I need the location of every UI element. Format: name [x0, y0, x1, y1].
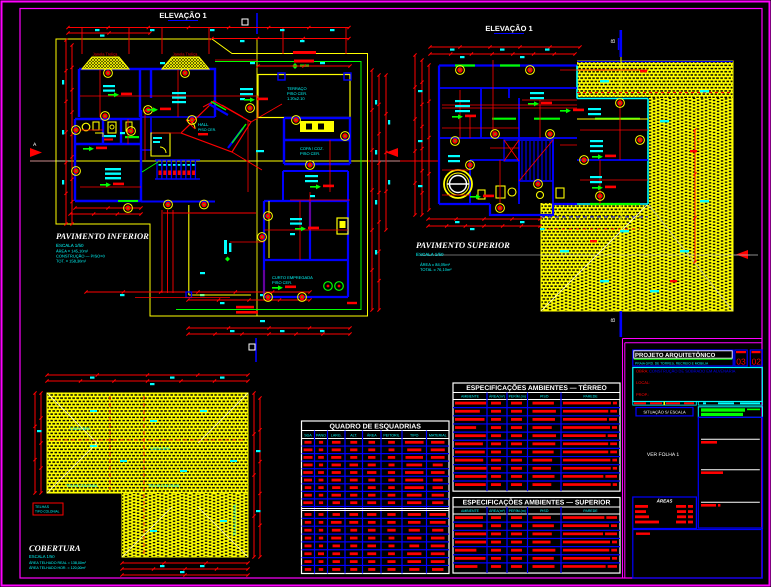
- svg-text:TOTAL = 76,10m²: TOTAL = 76,10m²: [420, 267, 452, 272]
- svg-text:ESCALA 1/50: ESCALA 1/50: [56, 243, 84, 248]
- svg-text:B: B: [610, 39, 617, 43]
- svg-text:AMBIENTE: AMBIENTE: [461, 509, 480, 513]
- svg-text:PRAIA GRD. DE TORRES, RECREIO: PRAIA GRD. DE TORRES, RECREIO E MOBILIA: [635, 362, 709, 366]
- svg-text:MATERIAL: MATERIAL: [429, 434, 447, 438]
- svg-text:TOT. = 158,30m²: TOT. = 158,30m²: [56, 259, 87, 264]
- svg-text:SGA: SGA: [304, 434, 312, 438]
- svg-text:TELHAS: TELHAS: [35, 505, 50, 509]
- svg-text:03: 03: [736, 357, 746, 367]
- svg-text:ALT.: ALT.: [350, 434, 357, 438]
- svg-text:CAIDA 30%: CAIDA 30%: [150, 447, 171, 451]
- svg-text:PAREDE: PAREDE: [583, 395, 598, 399]
- svg-text:OBRA:: OBRA:: [636, 369, 648, 374]
- svg-text:ÁREA TELHADO REAL = 138,00m²: ÁREA TELHADO REAL = 138,00m²: [29, 560, 87, 565]
- svg-text:TELHA COLONIAL: TELHA COLONIAL: [148, 484, 180, 488]
- svg-text:LOCAL:: LOCAL:: [636, 380, 650, 385]
- svg-text:PERÍM.(m): PERÍM.(m): [509, 508, 526, 513]
- svg-text:PAVIMENTO SUPERIOR: PAVIMENTO SUPERIOR: [416, 240, 510, 250]
- svg-text:LARG.: LARG.: [331, 434, 342, 438]
- svg-text:PANO: PANO: [316, 434, 326, 438]
- svg-text:CAIDA 30%: CAIDA 30%: [70, 427, 91, 431]
- svg-text:PISO: PISO: [540, 395, 549, 399]
- svg-text:HALL: HALL: [198, 122, 209, 127]
- svg-text:PERÍM.(m): PERÍM.(m): [509, 394, 526, 399]
- svg-text:VER FOLHA 1: VER FOLHA 1: [647, 452, 679, 458]
- svg-text:ESPECIFICAÇÕES AMBIENTES —: ESPECIFICAÇÕES AMBIENTES — SUPERIOR: [463, 498, 611, 507]
- svg-text:PISO CER.: PISO CER.: [198, 128, 216, 132]
- svg-text:1.20x2.10: 1.20x2.10: [287, 96, 305, 101]
- svg-text:ESPECIFICAÇÕES AMBIENTES —: ESPECIFICAÇÕES AMBIENTES — TÉRREO: [466, 383, 607, 392]
- svg-text:TIPO COLONIAL: TIPO COLONIAL: [35, 510, 60, 514]
- svg-text:PISO CER.: PISO CER.: [300, 151, 320, 156]
- svg-text:ELEVAÇÃO 1: ELEVAÇÃO 1: [485, 24, 532, 33]
- svg-text:TIPO: TIPO: [410, 434, 419, 438]
- svg-text:PAVIMENTO INFERIOR: PAVIMENTO INFERIOR: [56, 231, 149, 241]
- svg-text:Janela Treliça: Janela Treliça: [93, 52, 118, 57]
- svg-text:ÁREA TELHADO HOR. = 120,00m²: ÁREA TELHADO HOR. = 120,00m²: [29, 565, 87, 570]
- svg-text:B: B: [610, 318, 617, 322]
- svg-text:TELHA COLONIAL: TELHA COLONIAL: [233, 504, 237, 536]
- svg-text:ÁREAS: ÁREAS: [656, 498, 673, 503]
- svg-text:PROJETO ARQUITETÔNICO: PROJETO ARQUITETÔNICO: [635, 351, 716, 359]
- svg-text:PISO CER.: PISO CER.: [272, 280, 292, 285]
- svg-text:QUADRO DE ESQUADRIAS: QUADRO DE ESQUADRIAS: [330, 424, 422, 431]
- svg-text:COBERTURA: COBERTURA: [29, 543, 81, 553]
- svg-text:SITUAÇÃO S/ ESCALA: SITUAÇÃO S/ ESCALA: [643, 410, 686, 415]
- svg-text:ÁREA(m²): ÁREA(m²): [489, 508, 505, 513]
- svg-text:ELEVAÇÃO 1: ELEVAÇÃO 1: [159, 11, 206, 20]
- svg-text:ÁREA: ÁREA: [367, 433, 377, 438]
- svg-text:PEITORIL: PEITORIL: [383, 434, 399, 438]
- svg-text:ESCALA 1/50: ESCALA 1/50: [416, 252, 444, 257]
- svg-text:CONSTRUÇÃO DE SOBRADO EM ALVEN: CONSTRUÇÃO DE SOBRADO EM ALVENARIA: [649, 369, 736, 374]
- svg-text:PROP.:: PROP.:: [636, 392, 649, 397]
- svg-text:PISO: PISO: [540, 509, 549, 513]
- svg-text:ÁREA(m²): ÁREA(m²): [489, 394, 505, 399]
- svg-text:AMBIENTE: AMBIENTE: [461, 395, 480, 399]
- svg-text:PAREDE: PAREDE: [583, 509, 598, 513]
- svg-text:Janela Treliça: Janela Treliça: [173, 52, 198, 57]
- svg-text:ESCALA 1/50: ESCALA 1/50: [29, 554, 55, 559]
- svg-text:TELHA COLONIAL: TELHA COLONIAL: [66, 484, 98, 488]
- svg-text:02: 02: [752, 357, 762, 367]
